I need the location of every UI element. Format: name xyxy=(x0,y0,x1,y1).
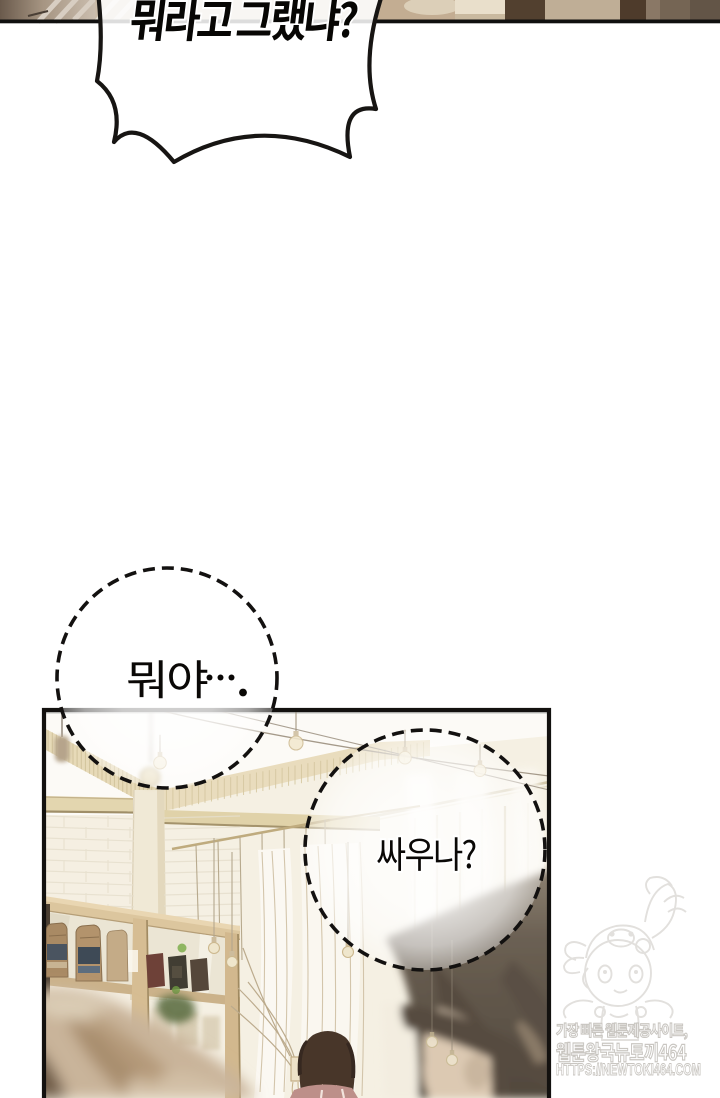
svg-text:HTTPS://NEWTOKI464.COM: HTTPS://NEWTOKI464.COM xyxy=(556,1061,701,1079)
